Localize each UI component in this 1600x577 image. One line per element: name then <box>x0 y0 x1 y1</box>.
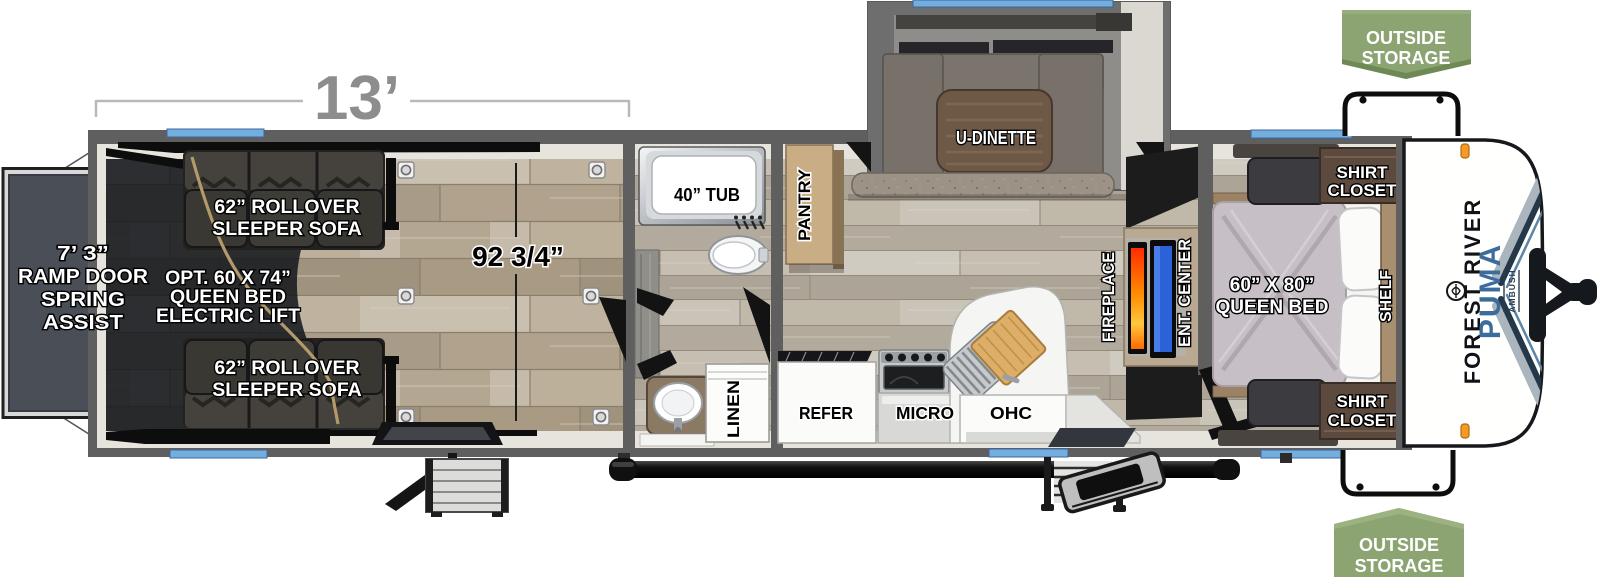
svg-text:ASSIST: ASSIST <box>43 312 123 334</box>
svg-text:SLEEPER SOFA: SLEEPER SOFA <box>212 218 362 240</box>
svg-text:STORAGE: STORAGE <box>1355 556 1444 576</box>
svg-text:PANTRY: PANTRY <box>796 169 814 241</box>
svg-text:SHIRT: SHIRT <box>1337 163 1389 182</box>
svg-text:SPRING: SPRING <box>41 289 125 311</box>
svg-text:MICRO: MICRO <box>896 403 954 423</box>
svg-text:SHIRT: SHIRT <box>1337 392 1389 411</box>
svg-text:40” TUB: 40” TUB <box>674 185 740 205</box>
svg-text:7’ 3”: 7’ 3” <box>57 243 109 265</box>
svg-text:SLEEPER SOFA: SLEEPER SOFA <box>212 379 362 401</box>
svg-text:OHC: OHC <box>990 403 1032 423</box>
svg-text:PUMA: PUMA <box>1474 243 1507 339</box>
svg-text:RAMP DOOR: RAMP DOOR <box>18 266 149 288</box>
svg-text:QUEEN BED: QUEEN BED <box>1216 297 1329 318</box>
svg-text:CLOSET: CLOSET <box>1328 181 1398 200</box>
svg-text:CLOSET: CLOSET <box>1328 411 1398 430</box>
svg-text:STORAGE: STORAGE <box>1362 48 1451 68</box>
svg-text:62” ROLLOVER: 62” ROLLOVER <box>214 196 359 218</box>
svg-text:62” ROLLOVER: 62” ROLLOVER <box>214 357 359 379</box>
svg-text:ENT. CENTER: ENT. CENTER <box>1176 239 1194 347</box>
svg-text:OUTSIDE: OUTSIDE <box>1359 535 1439 555</box>
svg-text:U-DINETTE: U-DINETTE <box>956 128 1036 148</box>
svg-text:SHELF: SHELF <box>1378 270 1395 322</box>
svg-text:OUTSIDE: OUTSIDE <box>1366 28 1446 48</box>
svg-text:LINEN: LINEN <box>725 380 743 438</box>
svg-text:FIREPLACE: FIREPLACE <box>1100 252 1118 342</box>
svg-text:REFER: REFER <box>799 403 853 423</box>
svg-text:ELECTRIC LIFT: ELECTRIC LIFT <box>156 305 300 327</box>
svg-text:AMBUSH: AMBUSH <box>1507 269 1517 312</box>
svg-text:92 3/4”: 92 3/4” <box>472 241 564 272</box>
svg-text:60” X 80”: 60” X 80” <box>1230 275 1315 296</box>
svg-text:13’: 13’ <box>314 64 400 133</box>
